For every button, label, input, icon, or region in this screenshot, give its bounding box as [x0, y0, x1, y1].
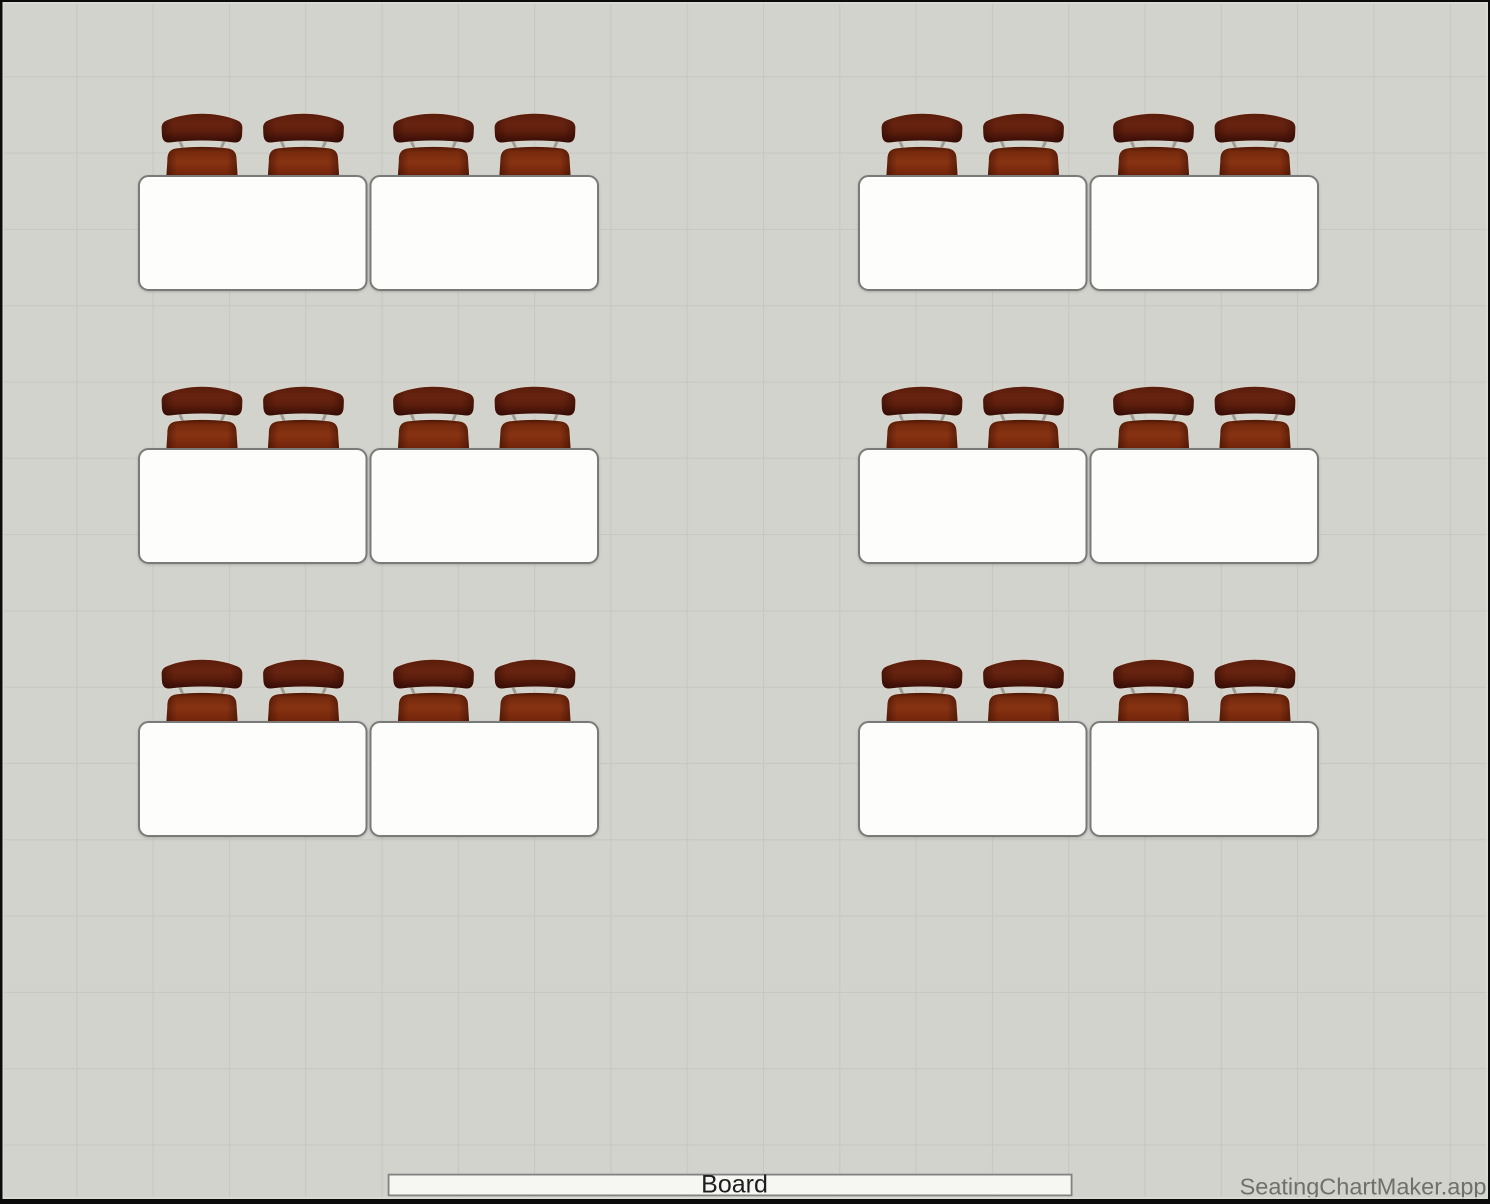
svg-text:SeatingChartMaker.app: SeatingChartMaker.app	[1240, 1174, 1487, 1200]
svg-text:Board: Board	[701, 1171, 768, 1199]
